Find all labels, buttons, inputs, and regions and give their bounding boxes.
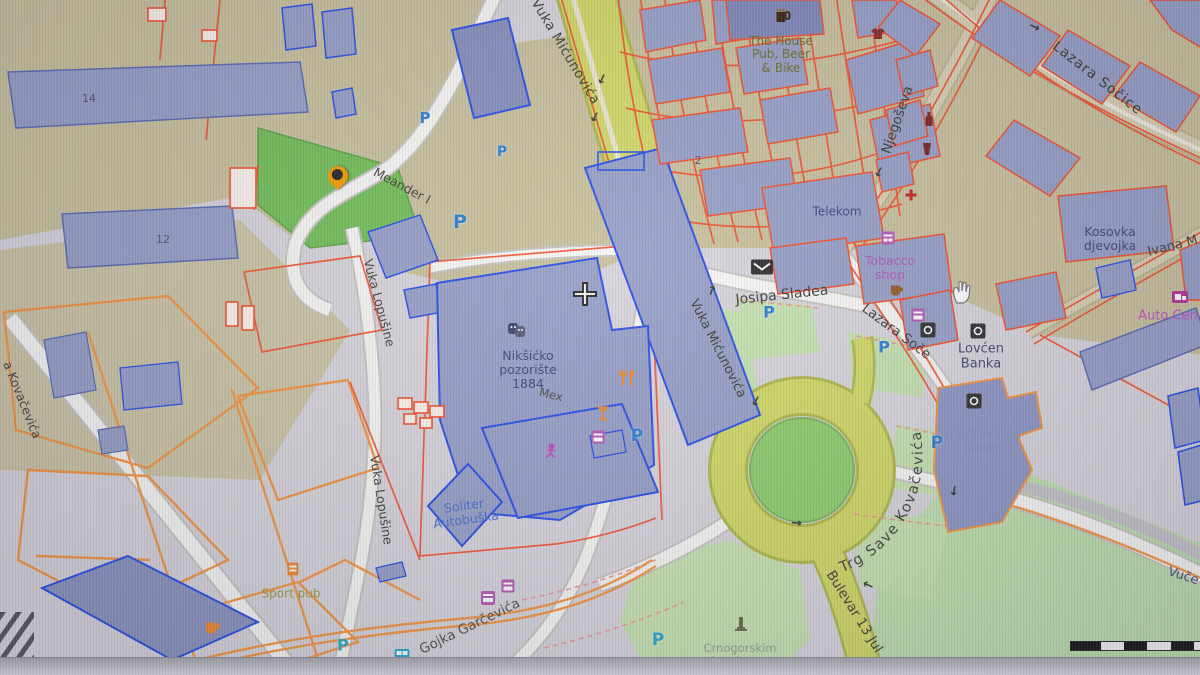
oneway-arrow-icon: → [945,484,962,497]
parking-icon: P [763,303,775,322]
pharmacy-cross-icon [906,190,917,201]
fast-food-icon [288,563,299,576]
atm-bank-icon [967,394,982,409]
shop-icon [592,431,605,444]
parking-icon: P [931,433,943,453]
clothes-shop-icon [871,28,885,40]
drinking-glass-icon [922,143,932,155]
parking-icon: P [497,144,507,160]
crosshair-cursor-icon [570,281,600,311]
cafe-cup-icon [890,285,904,296]
car-repair-icon [1172,291,1188,303]
parking-icon: P [652,630,664,650]
crossing-stripes [0,612,34,658]
map-canvas[interactable]: Trg Save Kovačevića [0,0,1200,675]
post-box-icon [751,260,773,275]
map-viewport: Trg Save Kovačevića Vuka Mićunovića Vuka… [0,0,1200,675]
bank-icon [921,323,936,338]
hand-cursor-icon [950,279,974,305]
parking-icon: P [453,211,467,233]
parking-icon: P [337,636,349,655]
parking-icon: P [878,338,890,357]
oneway-arrow-icon: → [790,516,802,532]
beer-pub-icon [776,7,791,23]
screen-edge-strip [0,657,1200,675]
theatre-masks-icon [508,323,526,337]
cafe-cup-icon [205,622,221,635]
shop-icon [912,309,925,322]
bar-bottle-icon [925,112,934,126]
tobacco-shop-icon [882,232,895,245]
sports-runner-icon [545,444,558,459]
bar-cocktail-icon [596,406,610,421]
scale-bar [1070,641,1200,651]
bank-icon [971,324,986,339]
restaurant-icon [619,370,635,387]
parking-icon: P [631,426,643,446]
shop-icon [481,591,495,605]
shop-icon [502,580,515,593]
monument-icon [735,616,747,632]
parking-icon: P [420,109,431,127]
